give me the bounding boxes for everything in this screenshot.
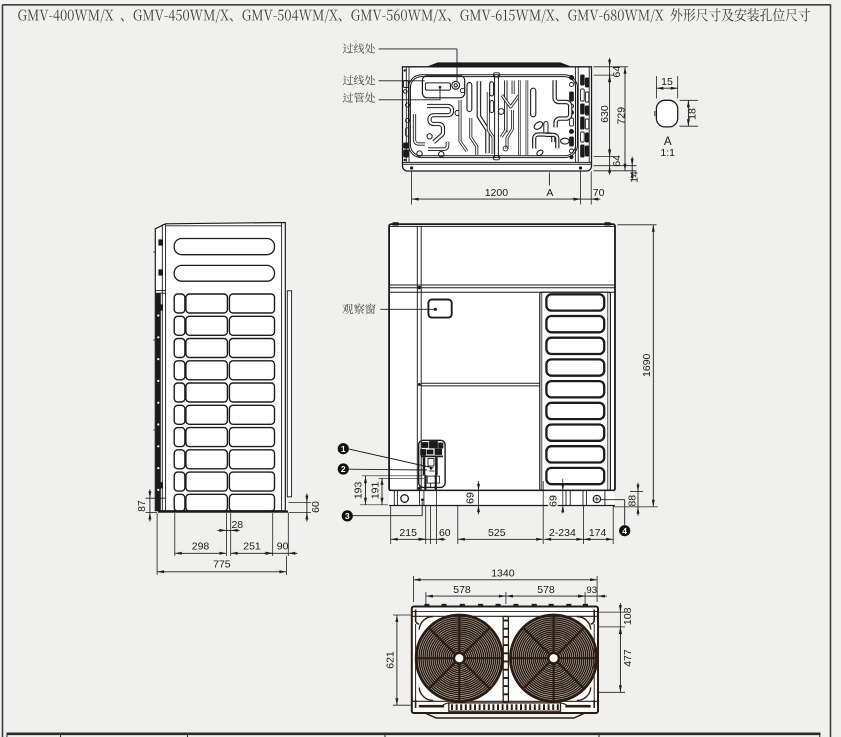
svg-text:4: 4 [622, 526, 627, 536]
svg-text:525: 525 [488, 527, 506, 539]
svg-text:60: 60 [310, 501, 322, 513]
svg-text:191: 191 [370, 481, 382, 499]
svg-text:298: 298 [192, 540, 210, 552]
svg-text:2: 2 [341, 464, 346, 474]
svg-text:729: 729 [615, 107, 627, 125]
svg-text:108: 108 [622, 607, 634, 625]
svg-text:1340: 1340 [491, 568, 515, 580]
svg-text:1:1: 1:1 [660, 147, 675, 159]
svg-text:60: 60 [439, 527, 451, 539]
svg-text:69: 69 [548, 495, 560, 507]
svg-text:193: 193 [353, 481, 365, 499]
svg-text:A: A [546, 187, 553, 199]
svg-text:1: 1 [341, 444, 346, 454]
svg-text:578: 578 [453, 584, 471, 596]
svg-text:64: 64 [611, 155, 623, 167]
svg-text:88: 88 [627, 495, 639, 507]
svg-text:64: 64 [611, 66, 623, 78]
svg-text:90: 90 [277, 540, 289, 552]
svg-text:69: 69 [465, 492, 477, 504]
svg-text:14: 14 [628, 171, 640, 183]
svg-text:477: 477 [622, 649, 634, 667]
svg-text:215: 215 [399, 527, 417, 539]
svg-text:28: 28 [231, 519, 243, 531]
svg-text:251: 251 [243, 540, 261, 552]
svg-text:1200: 1200 [485, 187, 509, 199]
svg-text:87: 87 [136, 500, 148, 512]
svg-text:775: 775 [213, 558, 231, 570]
svg-text:578: 578 [537, 584, 555, 596]
svg-text:15: 15 [661, 76, 673, 88]
svg-text:93: 93 [586, 585, 597, 596]
svg-text:630: 630 [599, 105, 611, 123]
svg-text:2-234: 2-234 [549, 527, 576, 539]
svg-text:70: 70 [593, 187, 605, 199]
svg-text:1690: 1690 [641, 353, 653, 377]
svg-text:621: 621 [385, 651, 397, 669]
svg-text:3: 3 [345, 511, 350, 521]
svg-text:18: 18 [686, 108, 698, 120]
svg-text:174: 174 [589, 527, 607, 539]
